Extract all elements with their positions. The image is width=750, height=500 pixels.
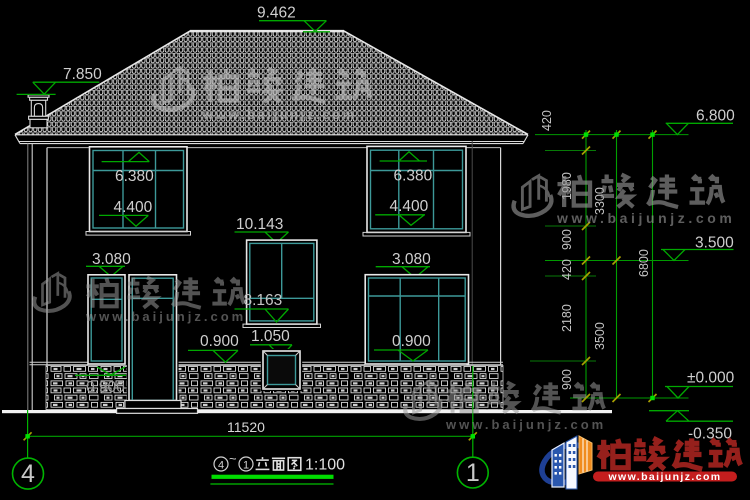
svg-text:420: 420 [540,110,554,131]
svg-text:420: 420 [560,259,574,280]
svg-text:1:100: 1:100 [305,457,345,474]
svg-text:±0.000: ±0.000 [687,370,735,387]
svg-text:0.900: 0.900 [200,333,239,350]
svg-text:6.380: 6.380 [394,168,433,185]
svg-text:6.380: 6.380 [115,168,154,185]
svg-text:8.163: 8.163 [244,292,283,309]
svg-text:6800: 6800 [637,249,651,277]
svg-text:www.baijunjz.com: www.baijunjz.com [202,107,357,122]
svg-text:9.462: 9.462 [257,5,296,22]
svg-text:4: 4 [218,460,224,472]
svg-text:www.baijunjz.com: www.baijunjz.com [607,471,721,483]
svg-text:1: 1 [466,459,480,487]
svg-text:1.050: 1.050 [251,328,290,345]
svg-text:www.baijunjz.com: www.baijunjz.com [85,309,246,324]
svg-text:2180: 2180 [560,304,574,332]
svg-text:www.baijunjz.com: www.baijunjz.com [556,210,735,226]
svg-text:10.143: 10.143 [236,216,283,233]
svg-text:0.900: 0.900 [86,379,125,396]
svg-text:3.080: 3.080 [392,251,431,268]
svg-text:~: ~ [229,451,237,466]
svg-text:900: 900 [560,369,574,390]
svg-text:7.850: 7.850 [63,66,102,83]
svg-text:0.900: 0.900 [392,333,431,350]
svg-text:11520: 11520 [227,419,265,435]
svg-text:4.400: 4.400 [390,198,429,215]
svg-text:www.baijunjz.com: www.baijunjz.com [445,417,606,432]
svg-text:6.800: 6.800 [696,108,735,125]
svg-text:1: 1 [243,460,249,472]
svg-text:3.080: 3.080 [92,251,131,268]
svg-text:4: 4 [21,460,35,488]
svg-text:3500: 3500 [593,322,607,350]
svg-text:4.400: 4.400 [114,199,153,216]
svg-text:900: 900 [560,229,574,250]
svg-text:-0.350: -0.350 [688,426,732,443]
